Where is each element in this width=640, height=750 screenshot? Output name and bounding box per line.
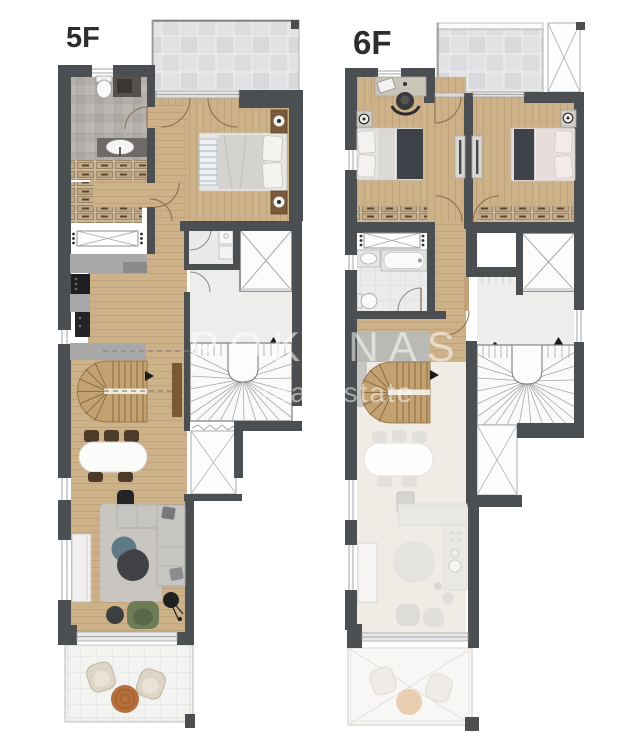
svg-text:ROKANAS: ROKANAS [189,323,464,370]
svg-text:6F: 6F [353,24,392,61]
svg-text:5F: 5F [66,22,100,54]
svg-text:real estate: real estate [262,377,415,408]
